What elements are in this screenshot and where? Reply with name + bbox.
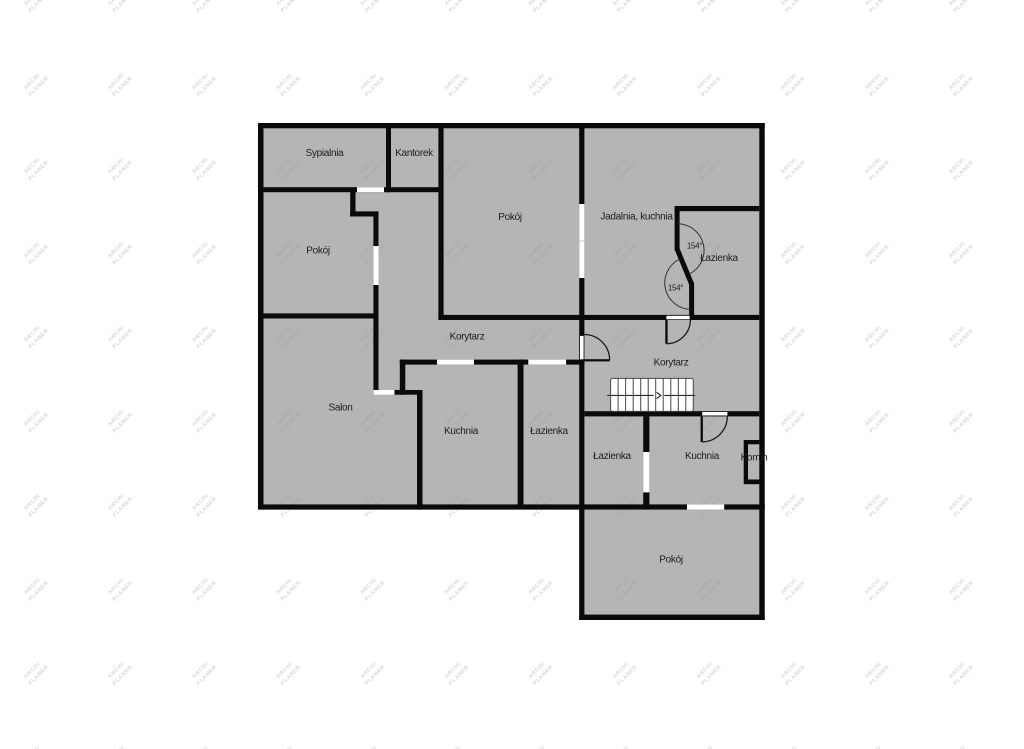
svg-text:154°: 154° — [687, 242, 702, 251]
svg-text:Korytarz: Korytarz — [654, 358, 689, 369]
svg-text:Sypialnia: Sypialnia — [306, 148, 345, 159]
svg-text:Komin: Komin — [741, 453, 768, 464]
svg-text:Kuchnia: Kuchnia — [685, 451, 720, 462]
svg-text:Jadalnia, kuchnia: Jadalnia, kuchnia — [600, 212, 673, 223]
svg-text:154°: 154° — [668, 284, 683, 293]
svg-text:Łazienka: Łazienka — [700, 253, 738, 264]
svg-text:Kuchnia: Kuchnia — [444, 426, 479, 437]
svg-text:Pokój: Pokój — [498, 212, 522, 223]
svg-text:Łazienka: Łazienka — [530, 426, 568, 437]
svg-text:Pokój: Pokój — [306, 246, 330, 257]
svg-text:Korytarz: Korytarz — [450, 332, 485, 343]
svg-text:Pokój: Pokój — [659, 555, 683, 566]
svg-text:Salon: Salon — [328, 402, 352, 413]
svg-text:Kantorek: Kantorek — [395, 148, 434, 159]
svg-text:Łazienka: Łazienka — [593, 451, 631, 462]
